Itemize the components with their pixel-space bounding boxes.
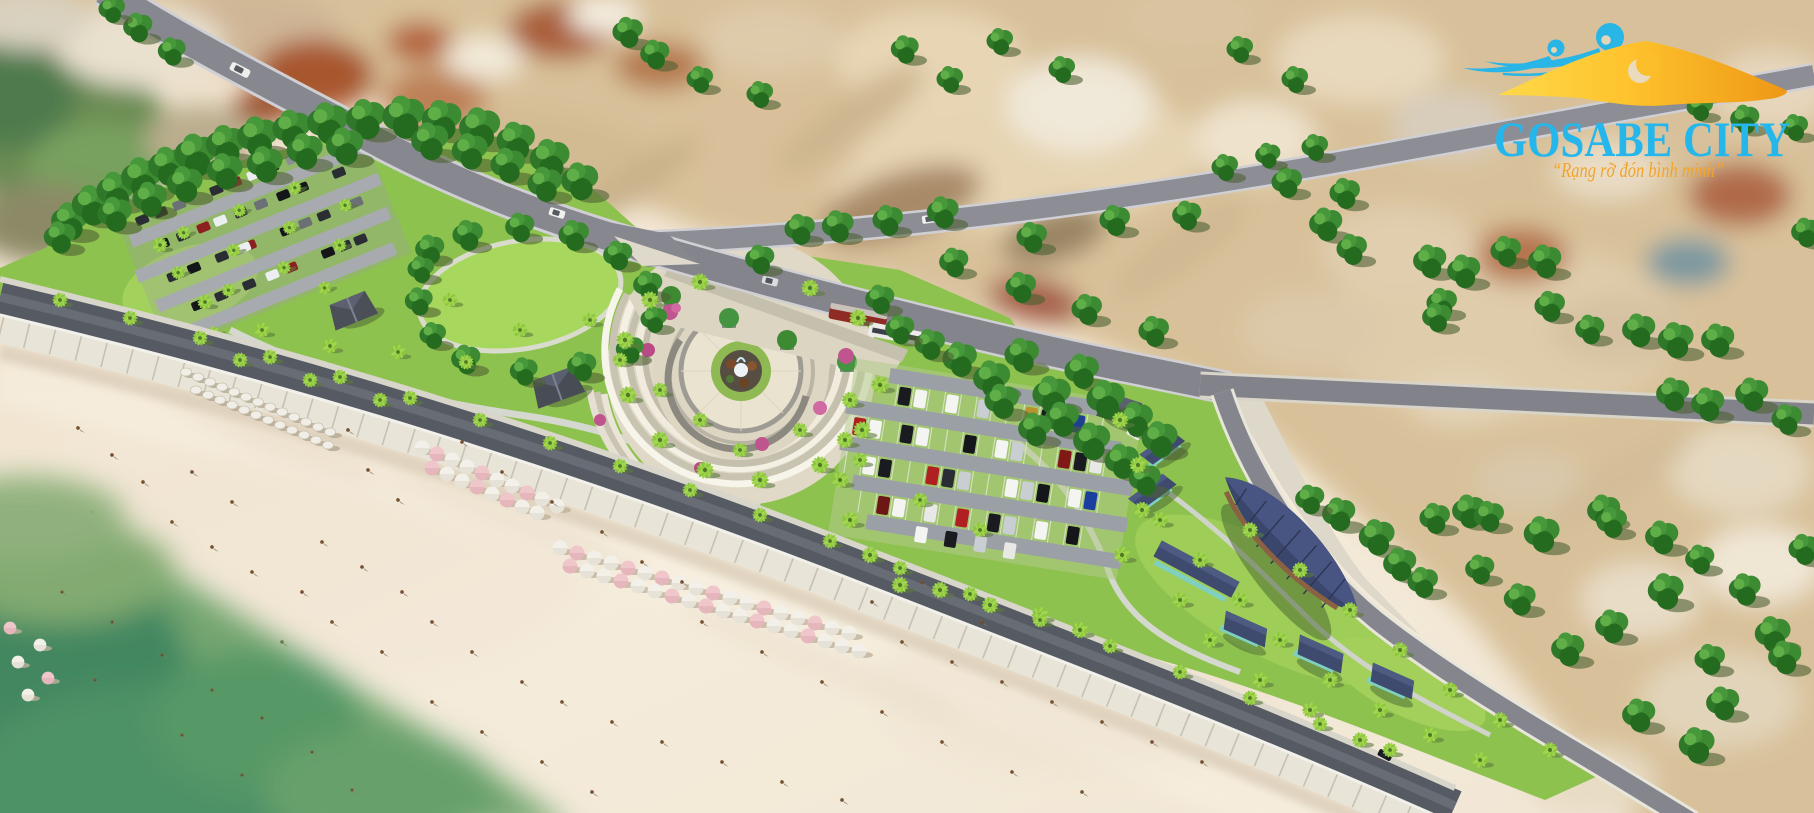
svg-text:“Rạng rỡ đón bình minh”: “Rạng rỡ đón bình minh” bbox=[1552, 158, 1724, 182]
